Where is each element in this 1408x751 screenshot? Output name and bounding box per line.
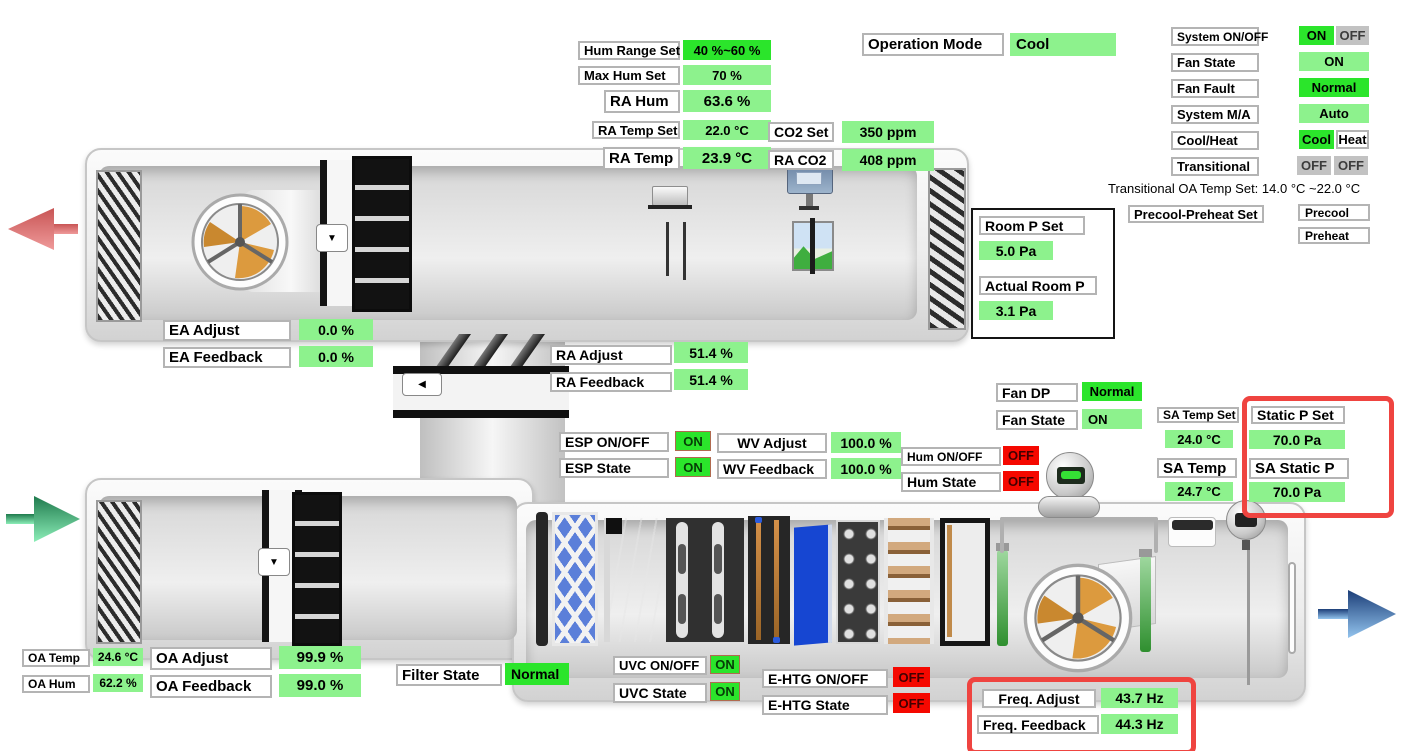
hum-onoff-value[interactable]: OFF — [1003, 446, 1039, 465]
supply-fan-icon — [1022, 562, 1134, 674]
ra-temp-set-label: RA Temp Set — [592, 121, 680, 139]
co2-set-value[interactable]: 350 ppm — [842, 121, 934, 143]
oa-hum-label: OA Hum — [22, 675, 90, 693]
ra-damper-actuator: ◀ — [402, 373, 442, 396]
ra-hum-label: RA Hum — [604, 90, 680, 113]
pressure-transmitter-stem — [1242, 540, 1250, 550]
heating-coil-icon — [884, 518, 934, 644]
camera-sensor-base — [799, 206, 819, 210]
sensor-probe — [810, 218, 815, 274]
actual-room-p-label: Actual Room P — [979, 276, 1097, 295]
ra-hum-value: 63.6 % — [683, 90, 771, 112]
ea-louver-icon — [96, 170, 142, 322]
max-hum-set-label: Max Hum Set — [578, 66, 680, 85]
e-htg-state-value: OFF — [893, 693, 930, 713]
esp-onoff-value[interactable]: ON — [675, 431, 711, 451]
ra-feedback-value: 51.4 % — [674, 369, 748, 390]
camera-sensor-screen — [796, 172, 822, 185]
esp-power-box — [606, 518, 622, 534]
system-ma-label: System M/A — [1171, 105, 1259, 124]
ra-temp-label: RA Temp — [603, 147, 680, 170]
exhaust-fan-icon — [190, 192, 290, 292]
uvc-state-value: ON — [710, 682, 740, 701]
co2-set-label: CO2 Set — [768, 122, 834, 142]
preheat-button[interactable]: Preheat — [1298, 227, 1370, 244]
esp-onoff-label: ESP ON/OFF — [559, 432, 669, 452]
room-p-set-value[interactable]: 5.0 Pa — [979, 241, 1053, 260]
fan-dp-value: Normal — [1082, 382, 1142, 401]
system-on-button[interactable]: ON — [1299, 26, 1334, 45]
transitional-oa-temp-note: Transitional OA Temp Set: 14.0 °C ~22.0 … — [1108, 181, 1360, 196]
ahu-hmi-screen: ▼ ◀ ▼ — [0, 0, 1408, 751]
uvc-lamp-section — [748, 516, 790, 644]
plate-section — [794, 524, 832, 645]
duct-sensor-base — [648, 205, 692, 209]
oa-feedback-label: OA Feedback — [150, 675, 272, 698]
damper-arrow-icon: ▼ — [327, 233, 337, 244]
room-p-set-label: Room P Set — [979, 216, 1085, 235]
operation-mode-value: Cool — [1010, 33, 1116, 56]
section-frame — [536, 512, 548, 646]
esp-section — [604, 518, 662, 642]
uvc-state-label: UVC State — [613, 683, 707, 703]
transitional-label: Transitional — [1171, 157, 1259, 176]
ra-feedback-label: RA Feedback — [550, 372, 672, 392]
fan-state-label: Fan State — [996, 410, 1078, 430]
oa-damper-grid — [292, 492, 342, 646]
impulse-pipe — [1000, 517, 1004, 553]
coil-header-panel — [836, 520, 880, 644]
oa-damper-actuator: ▼ — [258, 548, 290, 576]
max-hum-set-value[interactable]: 70 % — [683, 65, 771, 85]
sa-static-p-label: SA Static P — [1249, 458, 1349, 479]
sensor-probe — [683, 222, 686, 280]
coil-frame — [940, 518, 990, 646]
sensor-probe — [666, 222, 669, 276]
ea-adjust-label: EA Adjust — [163, 320, 291, 341]
ea-feedback-value: 0.0 % — [299, 346, 373, 367]
wv-feedback-label: WV Feedback — [717, 459, 827, 479]
heat-button[interactable]: Heat — [1336, 130, 1369, 149]
sa-temp-set-value[interactable]: 24.0 °C — [1165, 430, 1233, 448]
uvc-onoff-label: UVC ON/OFF — [613, 656, 707, 675]
freq-adjust-value[interactable]: 43.7 Hz — [1101, 688, 1178, 708]
e-htg-onoff-label: E-HTG ON/OFF — [762, 669, 888, 688]
ra-temp-value: 23.9 °C — [683, 147, 771, 169]
cool-heat-label: Cool/Heat — [1171, 131, 1259, 150]
filter-state-label: Filter State — [396, 664, 502, 686]
outdoor-air-arrow-icon — [4, 496, 80, 542]
slot-panel — [666, 518, 744, 642]
esp-state-value: ON — [675, 457, 711, 477]
sa-temp-set-label: SA Temp Set — [1157, 407, 1239, 423]
humidifier-lance-icon — [997, 550, 1008, 646]
transitional-right-button[interactable]: OFF — [1334, 156, 1368, 175]
hum-range-set-label: Hum Range Set — [578, 41, 680, 60]
esp-state-label: ESP State — [559, 458, 669, 478]
wv-adjust-value[interactable]: 100.0 % — [831, 432, 901, 453]
freq-feedback-label: Freq. Feedback — [977, 715, 1099, 734]
static-p-set-label: Static P Set — [1251, 406, 1345, 424]
system-off-button[interactable]: OFF — [1336, 26, 1369, 45]
freq-feedback-value: 44.3 Hz — [1101, 714, 1178, 734]
ea-damper-actuator: ▼ — [316, 224, 348, 252]
sa-temp-value: 24.7 °C — [1165, 482, 1233, 501]
fan-state-value: ON — [1082, 409, 1142, 429]
fan-fault-value: Normal — [1299, 78, 1369, 97]
damper-arrow-icon: ◀ — [418, 379, 426, 390]
ra-inlet-louver-icon — [928, 168, 966, 330]
humidifier-lance-icon — [1140, 556, 1151, 652]
e-htg-state-label: E-HTG State — [762, 695, 888, 715]
precool-button[interactable]: Precool — [1298, 204, 1370, 221]
fan-state-top-value: ON — [1299, 52, 1369, 71]
hum-range-set-value[interactable]: 40 %~60 % — [683, 40, 771, 60]
oa-feedback-value: 99.0 % — [279, 674, 361, 697]
fan-state-top-label: Fan State — [1171, 53, 1259, 72]
oa-louver-icon — [96, 500, 142, 644]
sensor-tube — [1288, 562, 1296, 654]
impulse-pipe — [1154, 517, 1158, 553]
humidifier-lance-cap — [1139, 549, 1152, 557]
oa-hum-value: 62.2 % — [93, 674, 143, 692]
ra-co2-label: RA CO2 — [768, 150, 834, 170]
actual-room-p-value: 3.1 Pa — [979, 301, 1053, 320]
damper-arrow-icon: ▼ — [269, 557, 279, 568]
oa-temp-value: 24.6 °C — [93, 648, 143, 666]
fan-dp-label: Fan DP — [996, 383, 1078, 402]
oa-temp-label: OA Temp — [22, 649, 90, 667]
wv-adjust-label: WV Adjust — [717, 433, 827, 453]
ea-adjust-value[interactable]: 0.0 % — [299, 319, 373, 340]
exhaust-air-arrow-icon — [8, 208, 80, 250]
ra-temp-set-value[interactable]: 22.0 °C — [683, 120, 771, 140]
ra-adjust-label: RA Adjust — [550, 345, 672, 365]
wv-feedback-value: 100.0 % — [831, 458, 901, 479]
ra-adjust-value[interactable]: 51.4 % — [674, 342, 748, 363]
ea-damper-grid — [352, 156, 412, 312]
precool-preheat-set-label: Precool-Preheat Set — [1128, 205, 1264, 223]
ea-feedback-label: EA Feedback — [163, 347, 291, 368]
transitional-left-button[interactable]: OFF — [1297, 156, 1331, 175]
oa-adjust-value[interactable]: 99.9 % — [279, 646, 361, 669]
operation-mode-label: Operation Mode — [862, 33, 1004, 56]
duct-sensor-icon — [652, 186, 688, 206]
pre-filter-icon — [552, 512, 598, 646]
hum-onoff-label: Hum ON/OFF — [901, 447, 1001, 466]
dp-transmitter-icon — [1046, 452, 1094, 500]
hum-state-label: Hum State — [901, 472, 1001, 492]
supply-air-arrow-icon — [1316, 590, 1396, 638]
freq-adjust-label: Freq. Adjust — [982, 689, 1096, 708]
sa-static-p-value: 70.0 Pa — [1249, 482, 1345, 502]
sa-temp-label: SA Temp — [1157, 458, 1237, 478]
system-onoff-label: System ON/OFF — [1171, 27, 1259, 46]
static-p-set-value[interactable]: 70.0 Pa — [1249, 430, 1345, 449]
section-divider — [1247, 545, 1250, 685]
ra-co2-value: 408 ppm — [842, 149, 934, 171]
cool-button[interactable]: Cool — [1299, 130, 1334, 149]
roof-sensor-box-icon — [1168, 517, 1216, 547]
e-htg-onoff-value[interactable]: OFF — [893, 667, 930, 687]
uvc-onoff-value[interactable]: ON — [710, 655, 740, 674]
fan-fault-label: Fan Fault — [1171, 79, 1259, 98]
system-ma-value: Auto — [1299, 104, 1369, 123]
dp-transmitter-body — [1038, 496, 1100, 518]
hum-state-value: OFF — [1003, 471, 1039, 491]
oa-adjust-label: OA Adjust — [150, 647, 272, 670]
filter-state-value: Normal — [505, 663, 569, 685]
